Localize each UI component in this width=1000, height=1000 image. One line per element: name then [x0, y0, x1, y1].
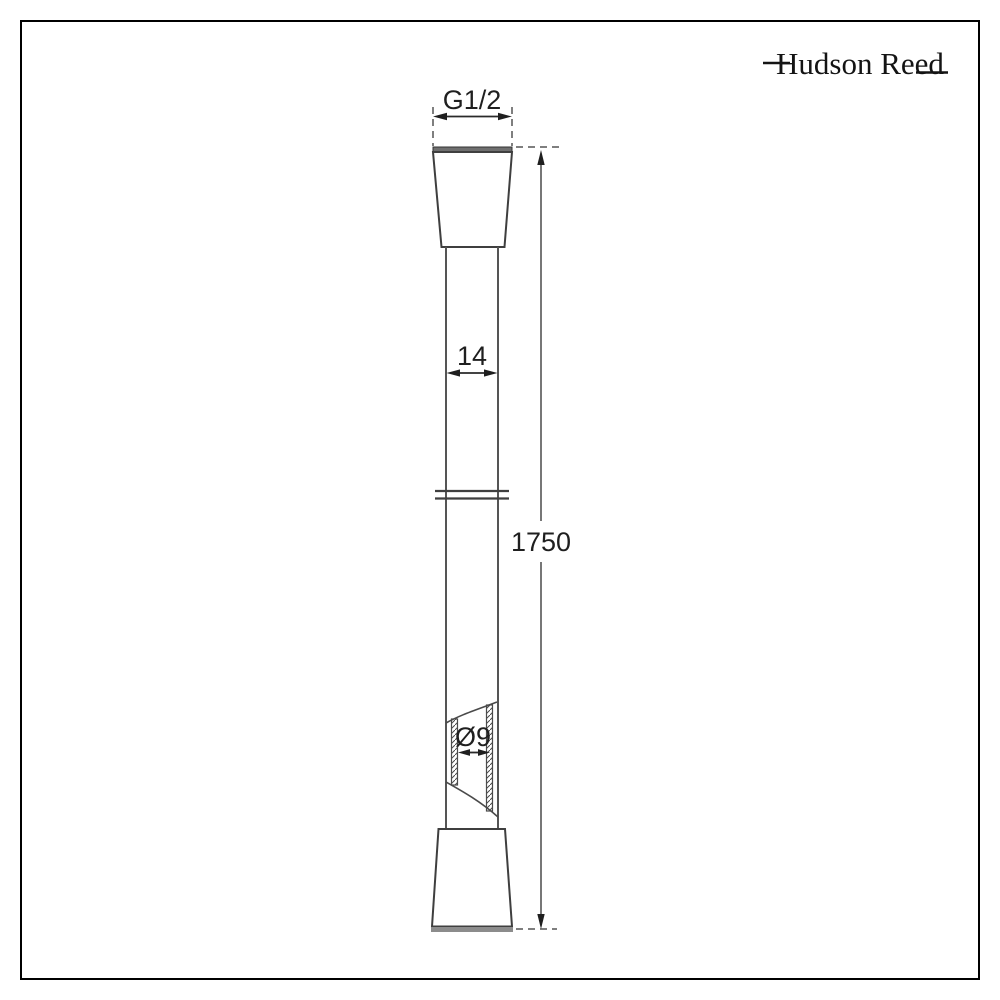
- hose-wall-section-right: [487, 705, 493, 811]
- top-connector: [433, 147, 512, 247]
- thread-size-dimension: G1/2: [433, 85, 512, 146]
- brand-logo-text: Hudson Reed: [776, 46, 944, 81]
- top-connector-body: [433, 152, 512, 247]
- bottom-connector: [431, 829, 513, 930]
- length-label: 1750: [511, 527, 571, 557]
- outer-diameter-dimension: 14: [447, 341, 498, 377]
- bottom-connector-body: [432, 829, 512, 927]
- outer-diameter-arrowhead-right: [484, 369, 498, 376]
- cutaway-section: [446, 702, 498, 817]
- length-arrowhead-down: [537, 914, 544, 929]
- inner-diameter-label: Ø9: [455, 722, 491, 752]
- outer-diameter-arrowhead-left: [447, 369, 461, 376]
- length-dimension: 1750: [511, 147, 571, 929]
- inner-diameter-dimension: Ø9: [455, 722, 491, 756]
- brand-logo: Hudson Reed: [763, 46, 948, 81]
- shower-hose-technical-drawing: Hudson Reed G1/2 14: [0, 0, 1000, 1000]
- product-drawing-page: Hudson Reed G1/2 14: [0, 0, 1000, 1000]
- thread-size-label: G1/2: [443, 85, 502, 115]
- length-arrowhead-up: [537, 150, 544, 165]
- outer-diameter-label: 14: [457, 341, 487, 371]
- thread-size-arrowhead-left: [433, 113, 447, 120]
- thread-size-arrowhead-right: [498, 113, 512, 120]
